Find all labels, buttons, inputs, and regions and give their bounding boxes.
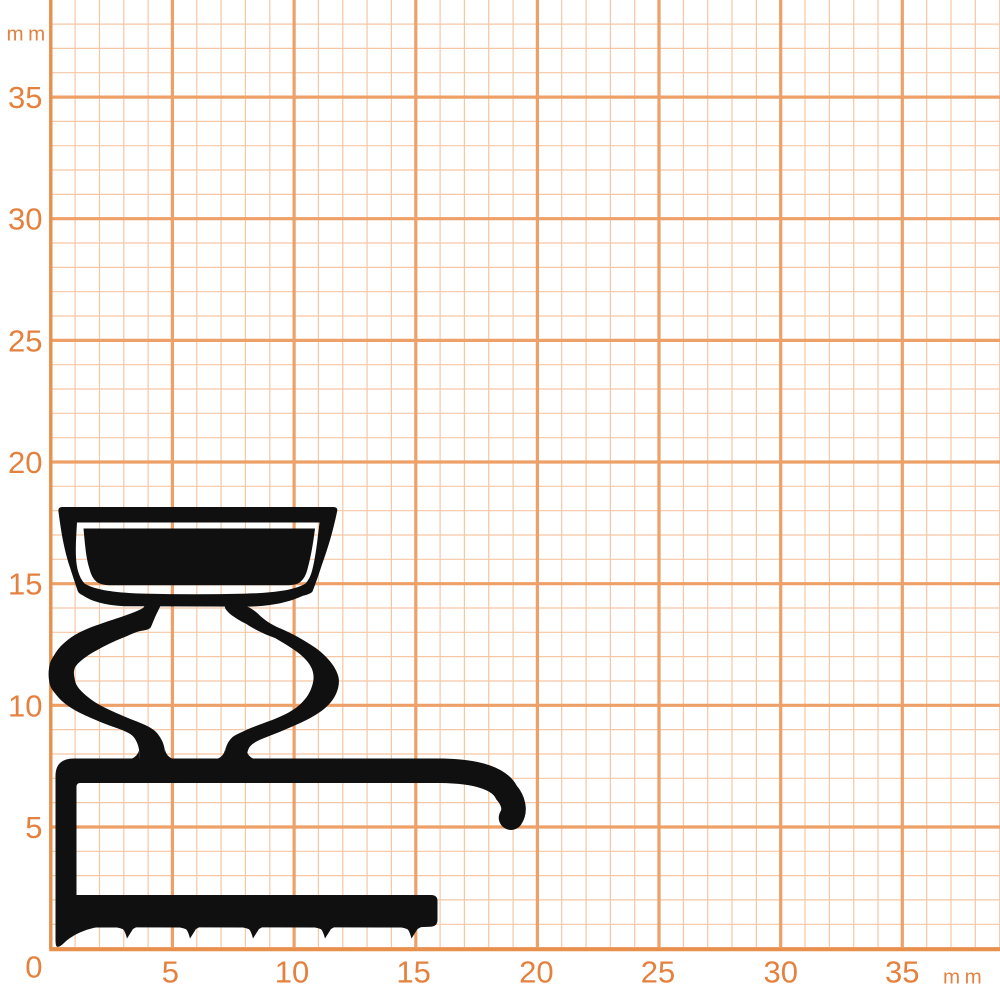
- svg-text:0: 0: [25, 950, 42, 985]
- svg-text:5: 5: [25, 810, 42, 845]
- svg-text:mm: mm: [7, 22, 50, 45]
- svg-text:35: 35: [8, 80, 42, 115]
- svg-text:15: 15: [8, 567, 42, 602]
- svg-text:15: 15: [396, 955, 430, 990]
- svg-text:5: 5: [162, 955, 179, 990]
- svg-text:30: 30: [8, 202, 42, 237]
- svg-text:25: 25: [641, 955, 675, 990]
- svg-text:20: 20: [519, 955, 553, 990]
- svg-text:20: 20: [8, 445, 42, 480]
- svg-text:30: 30: [763, 955, 797, 990]
- svg-text:10: 10: [275, 955, 309, 990]
- svg-text:25: 25: [8, 323, 42, 358]
- svg-text:mm: mm: [943, 966, 986, 989]
- svg-text:35: 35: [885, 955, 919, 990]
- svg-text:10: 10: [8, 688, 42, 723]
